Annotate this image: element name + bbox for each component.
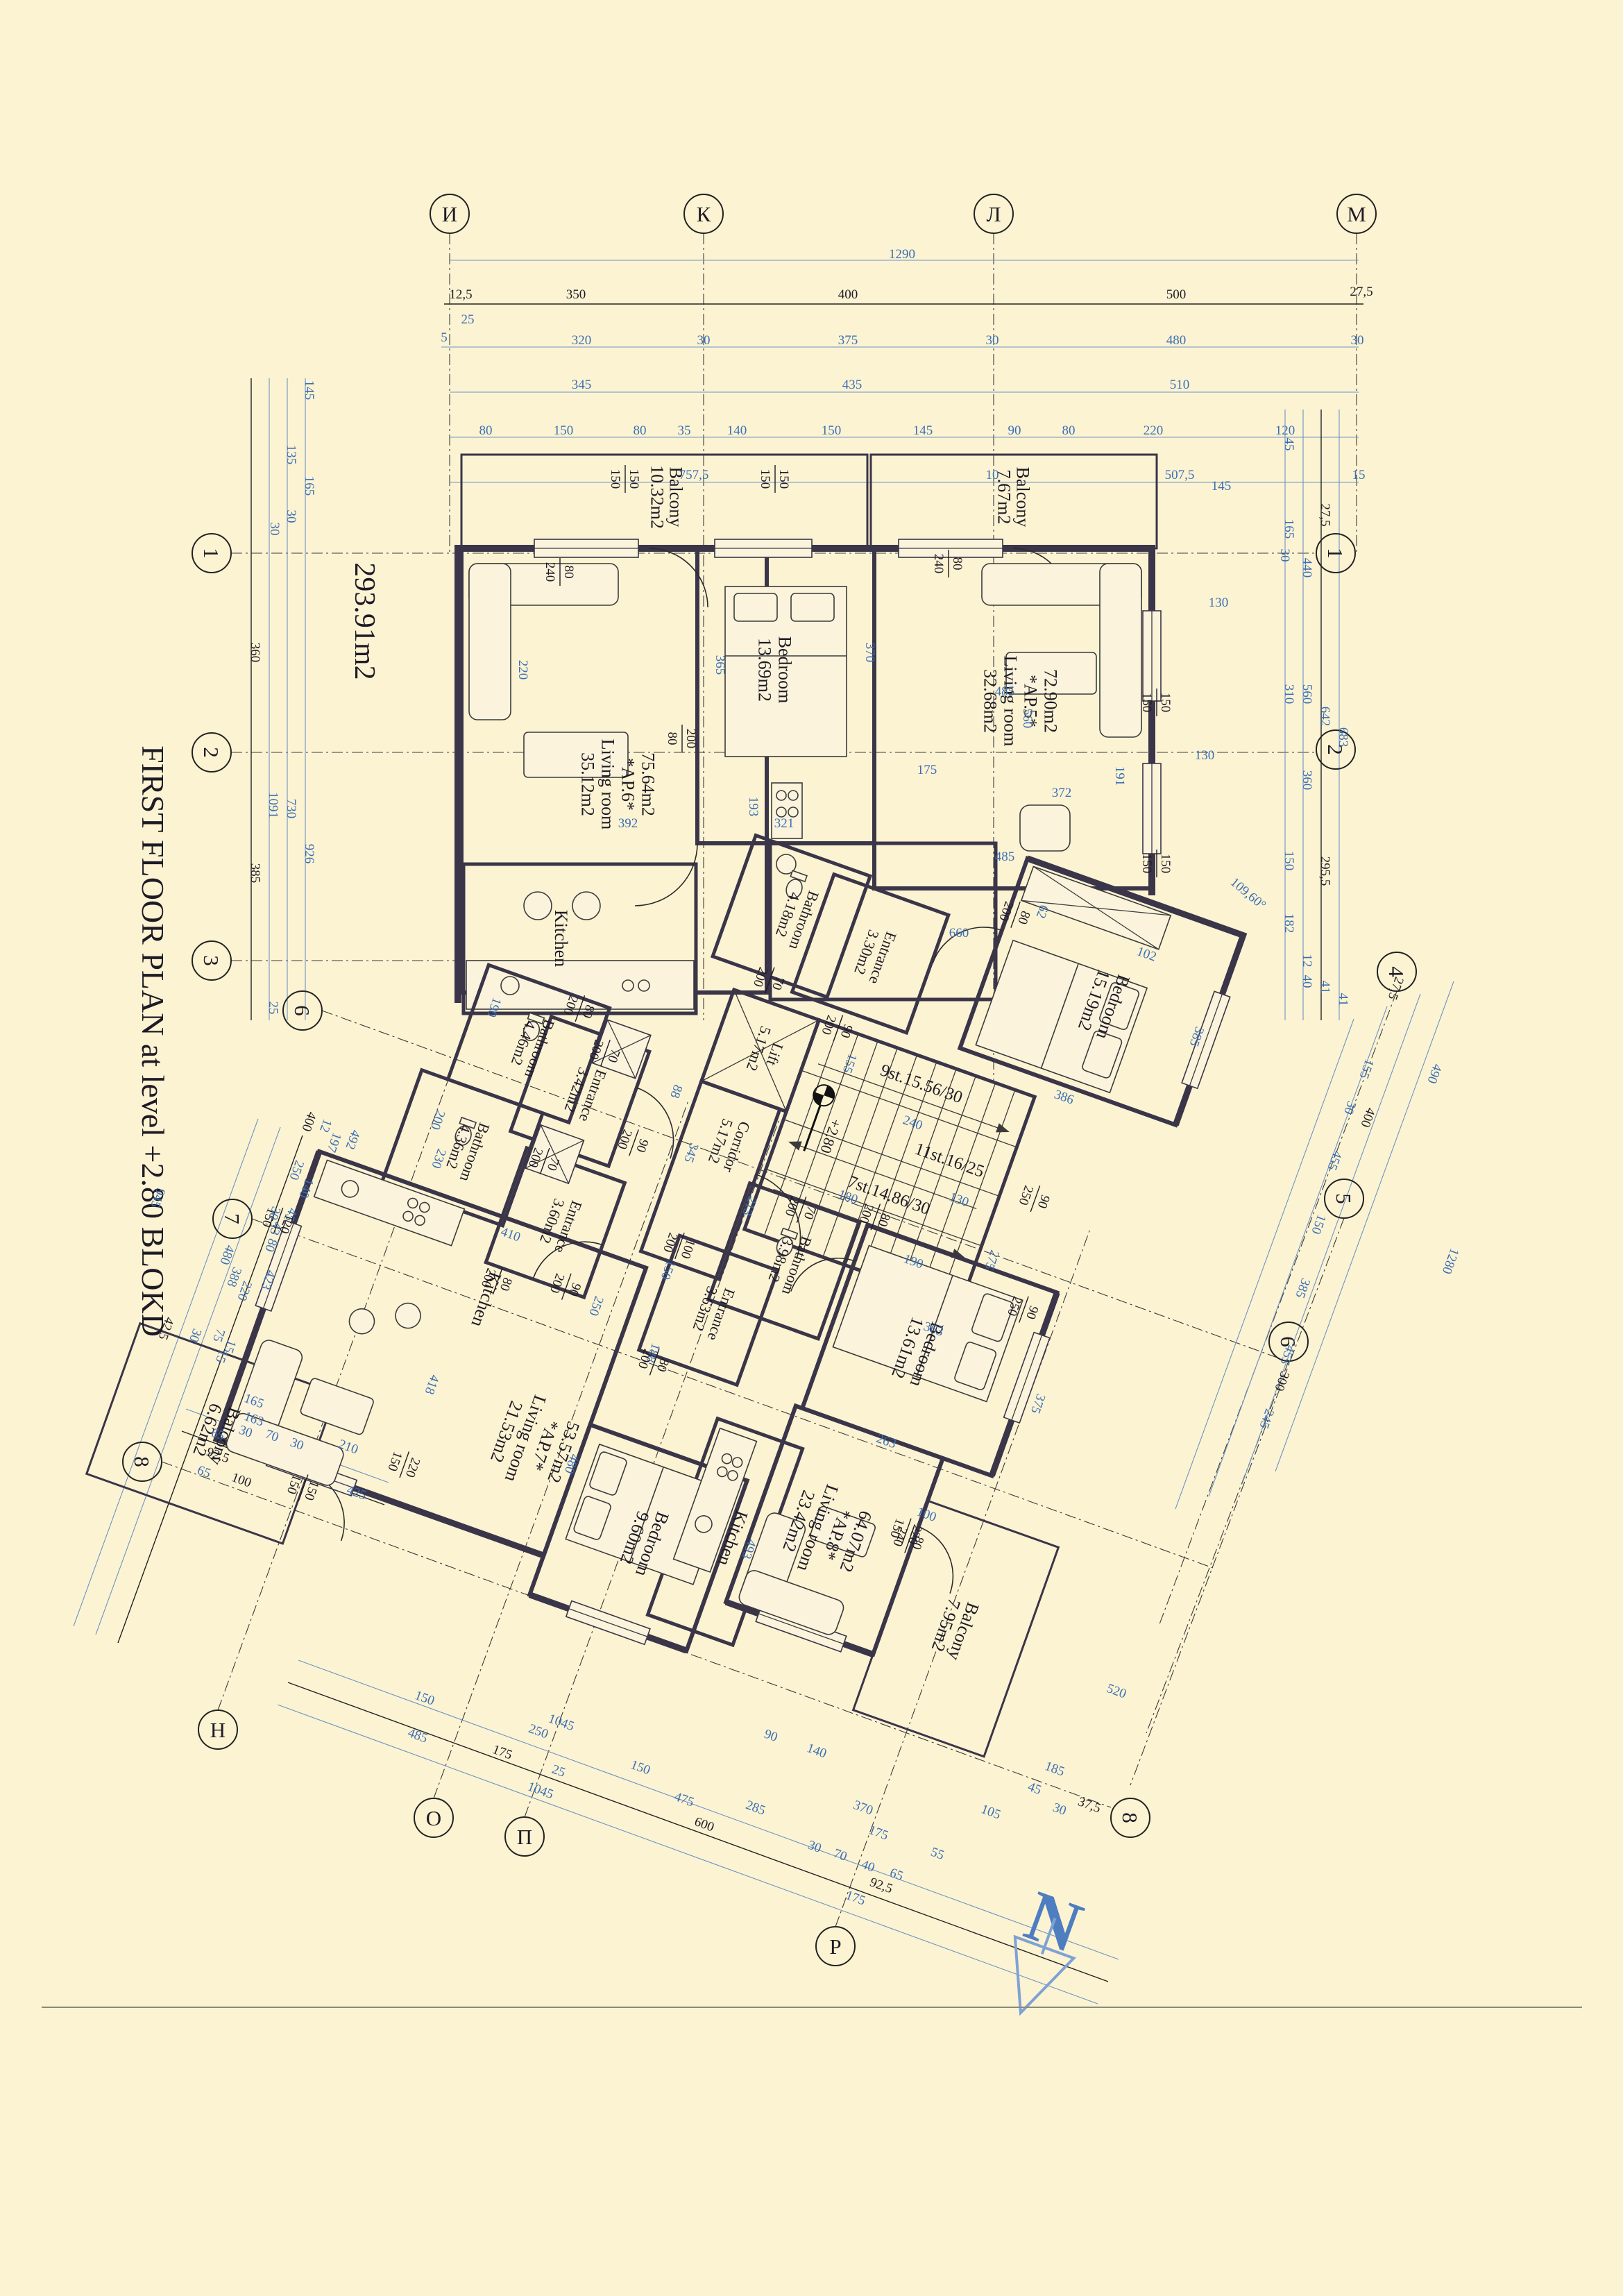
axis-bubble-5: 5	[1325, 1179, 1363, 1218]
dim-label: 345	[572, 378, 592, 392]
opening-size-label: 220150	[383, 1446, 424, 1483]
dim-label: 365	[713, 655, 727, 675]
dim-label: 80	[1062, 423, 1076, 438]
dim-label: 230	[428, 1147, 448, 1170]
svg-text:Л: Л	[986, 202, 1001, 226]
angle-annotation: 109,60°	[1227, 875, 1268, 913]
axis-bubble-Л: Л	[974, 194, 1013, 233]
dim-label: 440	[1300, 558, 1314, 578]
dim-label: 40	[1300, 975, 1314, 988]
axis-bubble-М: М	[1337, 194, 1376, 233]
svg-text:90: 90	[838, 1022, 856, 1040]
level-marker-label: +2.80	[817, 1117, 845, 1156]
dim-label: 320	[572, 333, 592, 348]
dim-label: 150	[554, 423, 574, 438]
floor-plan-sheet: Bathroom4.18m2Entrance3.30m2Bedroom15.19…	[0, 0, 1623, 2296]
svg-text:250: 250	[1016, 1183, 1036, 1207]
axis-bubble-2: 2	[192, 733, 231, 772]
svg-text:О: О	[426, 1806, 441, 1830]
dim-label: 80	[479, 423, 493, 438]
dim-label: 375	[838, 333, 858, 348]
dim-label: 40	[859, 1857, 876, 1875]
dim-label: 165	[1282, 519, 1296, 539]
north-arrow: N	[992, 1873, 1097, 2023]
dim-label: 65	[195, 1463, 212, 1481]
dim-label: 220	[516, 660, 530, 680]
dim-label: 240	[901, 1113, 924, 1133]
dim-label: 175	[844, 1888, 867, 1908]
axis-bubble-Н: Н	[198, 1710, 237, 1749]
dim-label: 25	[266, 1002, 280, 1015]
dim-label: 1280	[1439, 1246, 1462, 1276]
dim-label: 263	[874, 1431, 898, 1451]
svg-text:90: 90	[1023, 1303, 1041, 1321]
dim-label: 27,5	[1318, 503, 1332, 526]
svg-text:90: 90	[1035, 1193, 1053, 1210]
dim-label: 140	[727, 423, 747, 438]
ap6-bedroom-label: Bedroom13.69m2	[754, 636, 794, 704]
svg-text:К: К	[697, 202, 711, 226]
dim-label: 400	[298, 1110, 318, 1133]
dim-label: 220	[1144, 423, 1164, 438]
dim-label: 300	[1271, 1369, 1291, 1393]
dim-label: 295,5	[1318, 856, 1332, 886]
dim-label: 140	[805, 1741, 829, 1761]
axis-bubble-О: О	[414, 1798, 453, 1837]
ap7-living-label: 53.57m2*AP.7*Living room21.53m2	[482, 1385, 588, 1498]
dim-label: 560	[1300, 684, 1314, 704]
dim-label: 70	[831, 1846, 849, 1864]
axis-bubble-И: И	[430, 194, 469, 233]
dim-label: 507,5	[1165, 468, 1195, 482]
dim-label: 30	[1051, 1800, 1068, 1818]
dim-label: 485	[995, 684, 1015, 699]
dim-label: 150	[1282, 851, 1296, 871]
dim-label: 285	[744, 1798, 767, 1818]
dim-label: 193	[746, 797, 760, 817]
dim-label: 660	[949, 926, 969, 940]
dim-label: 425	[345, 1483, 368, 1503]
dim-label: 30	[284, 510, 298, 523]
dim-label: 410	[499, 1224, 522, 1244]
dim-label: 15	[1352, 468, 1366, 482]
dim-label: 12	[1300, 954, 1314, 968]
opening-size-label: 150150	[608, 465, 641, 493]
dim-label: 35	[678, 423, 691, 438]
dim-label: 455	[1324, 1149, 1344, 1172]
dim-label: 12,5	[449, 287, 472, 302]
dim-label: 10	[986, 468, 999, 482]
dim-label: 55	[928, 1845, 946, 1863]
dim-label: 90	[762, 1727, 779, 1745]
svg-text:200: 200	[819, 1013, 839, 1037]
dim-label: 480	[1166, 333, 1187, 348]
dim-label: 345	[681, 1141, 701, 1165]
dim-label: 30	[1341, 1099, 1359, 1116]
balcony-ap5-label: Balcony7.67m2	[994, 467, 1033, 527]
dim-label: 145	[913, 423, 933, 438]
dim-label: 1045	[546, 1711, 576, 1734]
dim-label: 150	[822, 423, 842, 438]
svg-text:150: 150	[1139, 854, 1154, 874]
dim-label: 191	[1112, 766, 1127, 786]
axis-bubble-Р: Р	[816, 1927, 855, 1966]
svg-text:80: 80	[950, 557, 965, 571]
dims-upper: 129012,535040050027,55253203037530480303…	[147, 247, 1461, 1909]
dim-label: 30	[697, 333, 711, 348]
dim-label: 130	[1195, 748, 1215, 763]
dim-label: 600	[692, 1814, 716, 1834]
svg-text:7: 7	[220, 1213, 244, 1224]
svg-text:80: 80	[1014, 909, 1033, 927]
svg-text:90: 90	[633, 1137, 651, 1154]
dim-label: 105	[979, 1802, 1003, 1822]
dim-label: 370	[863, 643, 877, 663]
svg-text:П: П	[517, 1825, 532, 1849]
dim-label: 435	[842, 378, 863, 392]
dim-label: 150	[1308, 1213, 1328, 1236]
dim-label: 492	[342, 1128, 362, 1151]
dim-label: 392	[618, 816, 638, 831]
dim-label: 418	[422, 1373, 442, 1396]
dim-label: 490	[1424, 1062, 1444, 1086]
dim-label: 5	[441, 330, 448, 345]
svg-text:80: 80	[561, 566, 576, 579]
axis-bubble-8: 8	[123, 1442, 162, 1481]
dim-label: 150	[413, 1688, 436, 1708]
axis-bubble-1: 1	[192, 534, 231, 573]
svg-text:150: 150	[1139, 693, 1154, 713]
svg-text:8: 8	[130, 1456, 154, 1467]
lift-label: Lift5.17m2	[743, 1024, 791, 1079]
svg-text:Н: Н	[210, 1718, 226, 1742]
dim-label: 27,5	[1385, 975, 1407, 1002]
dim-label: 135	[284, 445, 298, 465]
dim-label: 385	[1292, 1276, 1312, 1300]
axis-circles: ИКЛМ12312456678НОПР8	[123, 194, 1416, 1966]
svg-text:80: 80	[665, 732, 679, 745]
dim-label: 150	[629, 1757, 652, 1778]
entrance-360-label: Entrance3.60m2	[535, 1192, 586, 1255]
floor-plan-drawing: Bathroom4.18m2Entrance3.30m2Bedroom15.19…	[0, 0, 1623, 2296]
dim-label: 197	[323, 1131, 343, 1154]
dim-label: 372	[1052, 786, 1072, 800]
dim-label: 155	[1356, 1057, 1376, 1081]
dim-label: 80	[634, 423, 647, 438]
dim-label: 400	[838, 287, 858, 302]
dim-label: 45	[1282, 438, 1296, 451]
svg-text:3: 3	[199, 955, 223, 966]
lower-wing: Bathroom4.18m2Entrance3.30m2Bedroom15.19…	[87, 630, 1273, 1789]
dim-label: 480	[216, 1243, 237, 1267]
svg-text:6: 6	[290, 1005, 314, 1016]
dim-label: 250	[586, 1294, 606, 1318]
dim-label: 1290	[889, 247, 915, 262]
dim-label: 30	[806, 1838, 823, 1856]
dim-label: 88	[667, 1083, 685, 1100]
corridor-label: Corridor5.17m2	[704, 1113, 754, 1175]
entrance-342-label: Entrance3.42m2	[560, 1061, 611, 1124]
dim-label: 185	[1043, 1759, 1067, 1779]
dim-label: 175	[491, 1742, 514, 1762]
svg-text:150: 150	[384, 1449, 405, 1473]
dim-label: 145	[1212, 479, 1232, 493]
svg-text:200: 200	[614, 1127, 634, 1151]
stair-flight-2: 11st.16/25	[912, 1140, 987, 1181]
dim-label: 1045	[525, 1779, 555, 1802]
dim-label: 30	[986, 333, 999, 348]
dim-label: 321	[774, 816, 794, 831]
axis-bubble-3: 3	[192, 941, 231, 980]
svg-text:200: 200	[660, 1231, 680, 1254]
svg-text:1: 1	[1323, 548, 1348, 559]
dim-label: 520	[1105, 1681, 1128, 1701]
dim-label: 360	[1300, 770, 1314, 791]
dim-label: 130	[947, 1190, 971, 1210]
dim-label: 730	[284, 799, 298, 819]
ap5-living-label: 72.90m2*AP.5*Living room32.68m2	[980, 656, 1060, 747]
dim-label: 560	[1020, 709, 1035, 729]
dim-label: 683	[1336, 727, 1350, 748]
dim-label: 155	[840, 1052, 860, 1075]
opening-size-label: 150150	[758, 465, 791, 493]
total-area: 293.91m2	[348, 562, 380, 679]
dim-label: 757,5	[679, 468, 709, 482]
dim-label: 642	[1318, 707, 1332, 727]
dim-label: 175	[867, 1823, 890, 1843]
svg-text:М: М	[1347, 202, 1366, 226]
axis-bubble-8: 8	[1111, 1798, 1150, 1837]
dim-label: 360	[248, 643, 262, 663]
dim-label: 475	[672, 1789, 696, 1809]
svg-text:150: 150	[776, 469, 791, 489]
svg-text:100: 100	[678, 1237, 698, 1260]
dim-label: 175	[917, 763, 937, 777]
svg-text:8: 8	[1118, 1812, 1142, 1823]
opening-size-label: 90200	[545, 1267, 586, 1305]
dim-label: 1091	[266, 792, 280, 818]
svg-text:150: 150	[1158, 693, 1173, 713]
bathroom-418-label: Bathroom4.18m2	[770, 883, 822, 952]
dim-label: 400	[1357, 1106, 1377, 1129]
entrance-363-label: Entrance3.63m2	[688, 1281, 738, 1343]
dim-label: 150	[658, 1258, 678, 1281]
dim-label: 41	[1336, 993, 1350, 1006]
opening-size-label: 20080	[665, 725, 698, 752]
svg-text:150: 150	[627, 469, 641, 489]
svg-text:200: 200	[782, 1195, 802, 1218]
svg-text:150: 150	[1158, 854, 1173, 874]
dim-label: 41	[1318, 981, 1332, 994]
dim-label: 926	[302, 844, 316, 864]
dim-label: 30	[267, 523, 282, 536]
balcony-795-label: Balcony7.95m2	[926, 1594, 983, 1663]
dim-label: 485	[995, 850, 1015, 864]
svg-text:150: 150	[608, 469, 622, 489]
bathroom-446-label: Bathroom4.46m2	[505, 1011, 558, 1081]
axis-bubble-7: 7	[213, 1199, 252, 1238]
dim-label: 25	[550, 1762, 567, 1780]
dim-label: 90	[1008, 423, 1021, 438]
dim-label: 25	[461, 312, 475, 327]
svg-text:5: 5	[1332, 1193, 1356, 1204]
svg-text:240: 240	[543, 562, 557, 582]
dim-label: 130	[1209, 596, 1229, 610]
svg-text:200: 200	[996, 900, 1016, 923]
dim-label: 37,5	[1076, 1794, 1103, 1816]
dim-label: 30	[1277, 549, 1292, 562]
svg-text:2: 2	[199, 747, 223, 758]
svg-text:150: 150	[758, 469, 772, 489]
bathroom-436-label: Bathroom4.36m2	[441, 1115, 493, 1184]
svg-text:1: 1	[199, 548, 223, 559]
svg-text:240: 240	[931, 554, 946, 574]
dim-label: 500	[1166, 287, 1187, 302]
axis-bubble-1: 1	[1316, 534, 1355, 573]
axis-bubble-К: К	[684, 194, 723, 233]
svg-text:И: И	[442, 202, 457, 226]
axis-bubble-6: 6	[283, 991, 322, 1030]
dim-label: 350	[566, 287, 586, 302]
dim-label: 370	[851, 1798, 875, 1818]
dim-label: 310	[1282, 684, 1296, 704]
dim-label: 30	[1351, 333, 1364, 348]
axis-bubble-П: П	[505, 1817, 544, 1856]
svg-text:200: 200	[683, 729, 698, 749]
svg-text:220: 220	[402, 1455, 423, 1479]
svg-text:Р: Р	[829, 1934, 841, 1959]
opening-size-label: 90250	[1014, 1180, 1055, 1217]
dim-label: 245	[1256, 1407, 1276, 1430]
dim-label: 375	[1028, 1392, 1048, 1415]
dim-label: 145	[302, 380, 316, 400]
opening-size-label: 90200	[613, 1124, 654, 1161]
dim-label: 120	[1275, 423, 1295, 438]
dim-label: 485	[406, 1725, 430, 1746]
svg-text:80: 80	[874, 1211, 892, 1229]
dim-label: 165	[302, 476, 316, 496]
dim-label: 510	[1170, 378, 1190, 392]
entrance-330-label: Entrance3.30m2	[849, 924, 900, 986]
dim-label: 385	[248, 863, 262, 884]
dim-label: 182	[1282, 913, 1296, 934]
dim-label: 27,5	[1350, 285, 1373, 299]
ap6-kitchen-label: Kitchen	[551, 910, 571, 967]
sheet-title: FIRST FLOOR PLAN at level +2.80 BLOKD	[135, 745, 171, 1337]
